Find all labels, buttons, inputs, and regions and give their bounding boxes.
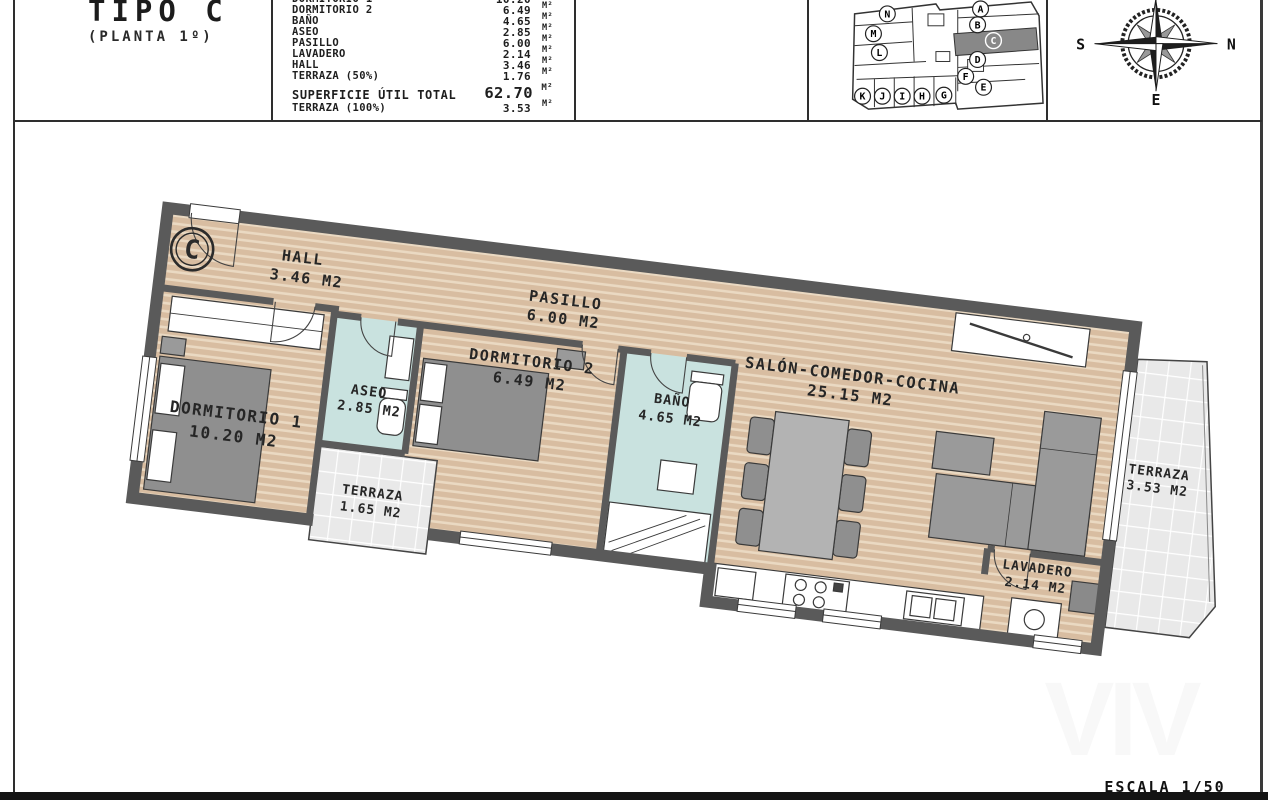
bottom-bar xyxy=(0,792,1268,800)
floor-plan: C HALL 3.46 M2 PASILLO 6.00 M2 DORMITORI… xyxy=(0,0,1280,800)
